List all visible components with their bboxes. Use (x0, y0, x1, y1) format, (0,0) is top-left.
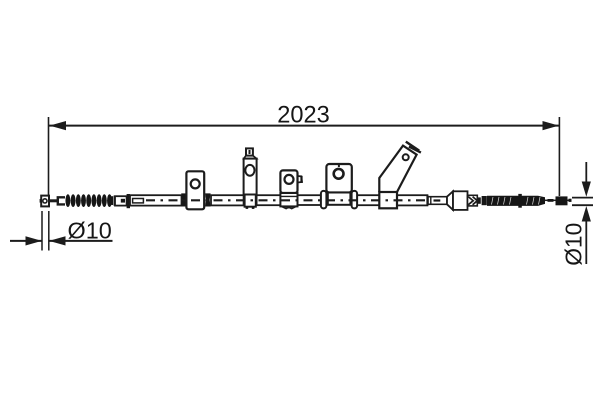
svg-text:Ø10: Ø10 (561, 223, 587, 266)
svg-text:2023: 2023 (277, 103, 330, 129)
svg-text:Ø10: Ø10 (68, 218, 112, 244)
